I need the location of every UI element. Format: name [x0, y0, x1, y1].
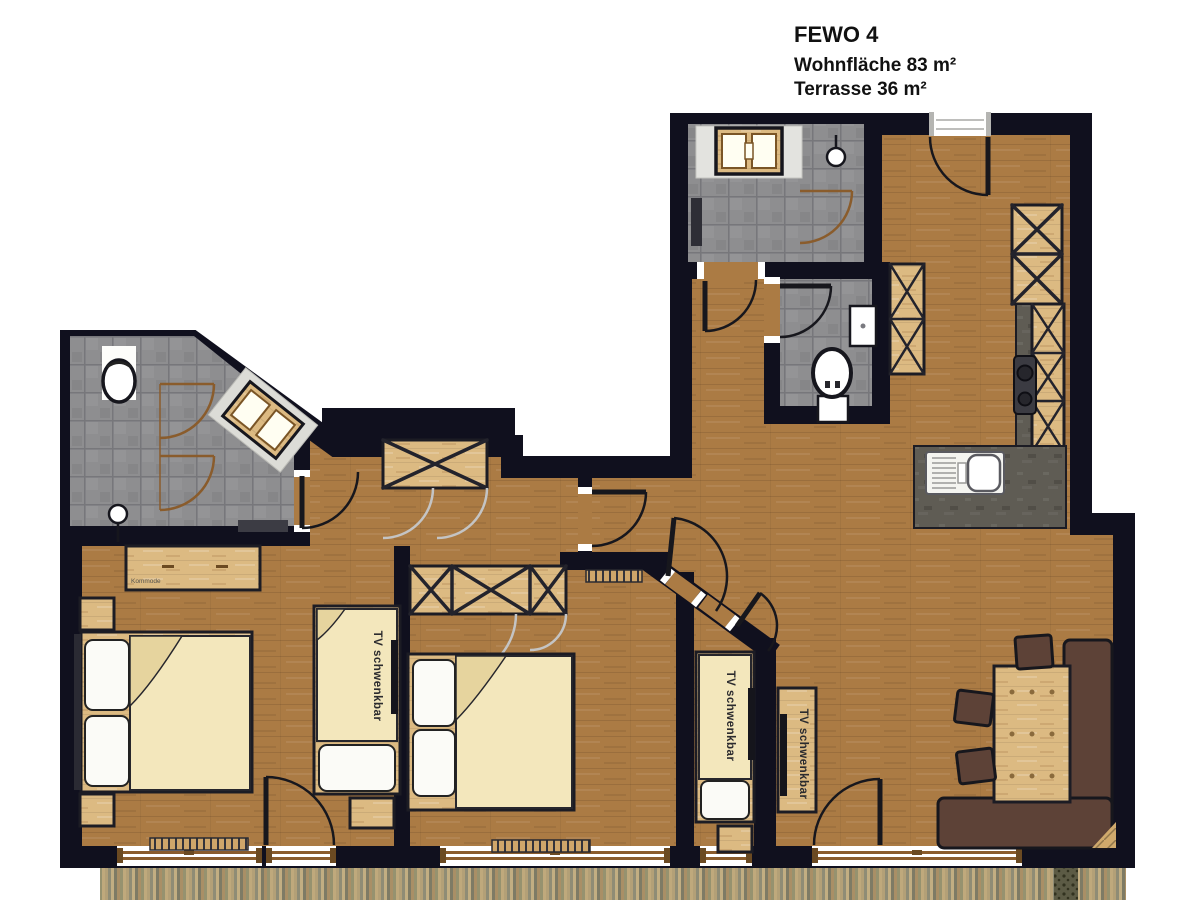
tv-icon: [780, 714, 787, 796]
nightstand: [718, 826, 752, 852]
corridor-wardrobe: [383, 440, 487, 488]
entrance-opening: [930, 112, 990, 136]
floorplan-page: FEWO 4 Wohnfläche 83 m² Terrasse 36 m²: [0, 0, 1200, 900]
radiator-bathroom: [691, 198, 702, 246]
toilet-icon: [813, 349, 851, 397]
dresser-label: Kommode: [131, 578, 161, 585]
floorplan-svg: FEWO 4 Wohnfläche 83 m² Terrasse 36 m²: [0, 0, 1200, 900]
single-bed: TV schwenkbar: [314, 606, 400, 794]
tv-label: TV schwenkbar: [797, 709, 809, 800]
radiator: [492, 840, 590, 852]
tv-label: TV schwenkbar: [371, 631, 383, 722]
tv-icon: [748, 688, 755, 760]
toilet-tank: [818, 396, 848, 422]
hall-wardrobe: [890, 264, 924, 374]
wall-lamp-icon: [109, 505, 127, 523]
tv-lowboard: TV schwenkbar: [778, 688, 816, 812]
dresser: Kommode: [126, 546, 260, 590]
nightstand: [350, 798, 394, 828]
chair: [956, 748, 996, 784]
tv-label: TV schwenkbar: [724, 671, 736, 762]
single-bed: TV schwenkbar: [696, 652, 754, 822]
window-bathroom-top: [716, 128, 782, 174]
terrace-deck: [100, 868, 1126, 900]
living-area-label: Wohnfläche 83 m²: [794, 55, 956, 76]
hedge-strip: [1054, 868, 1078, 900]
dining-table: [994, 666, 1070, 802]
bath-bench: [238, 520, 288, 532]
wardrobe: [410, 566, 566, 614]
terrace-door-bedroom1: [266, 846, 336, 866]
terrace-area-label: Terrasse 36 m²: [794, 79, 927, 100]
chair: [1015, 635, 1053, 669]
radiator: [586, 570, 642, 582]
nightstand: [80, 598, 114, 630]
ceiling-lamp-icon: [827, 148, 845, 166]
sink-icon: [926, 452, 1004, 494]
apartment-name: FEWO 4: [794, 22, 879, 47]
tv-icon: [391, 640, 398, 714]
bedroom-3: TV schwenkbar: [696, 652, 755, 852]
chair: [954, 690, 994, 726]
nightstand: [80, 794, 114, 826]
radiator: [150, 838, 248, 850]
double-bed: [408, 654, 574, 810]
kitchen-tall-cabinet: [1012, 205, 1062, 304]
double-bed: [74, 632, 252, 792]
cooktop-icon: [1014, 356, 1036, 414]
